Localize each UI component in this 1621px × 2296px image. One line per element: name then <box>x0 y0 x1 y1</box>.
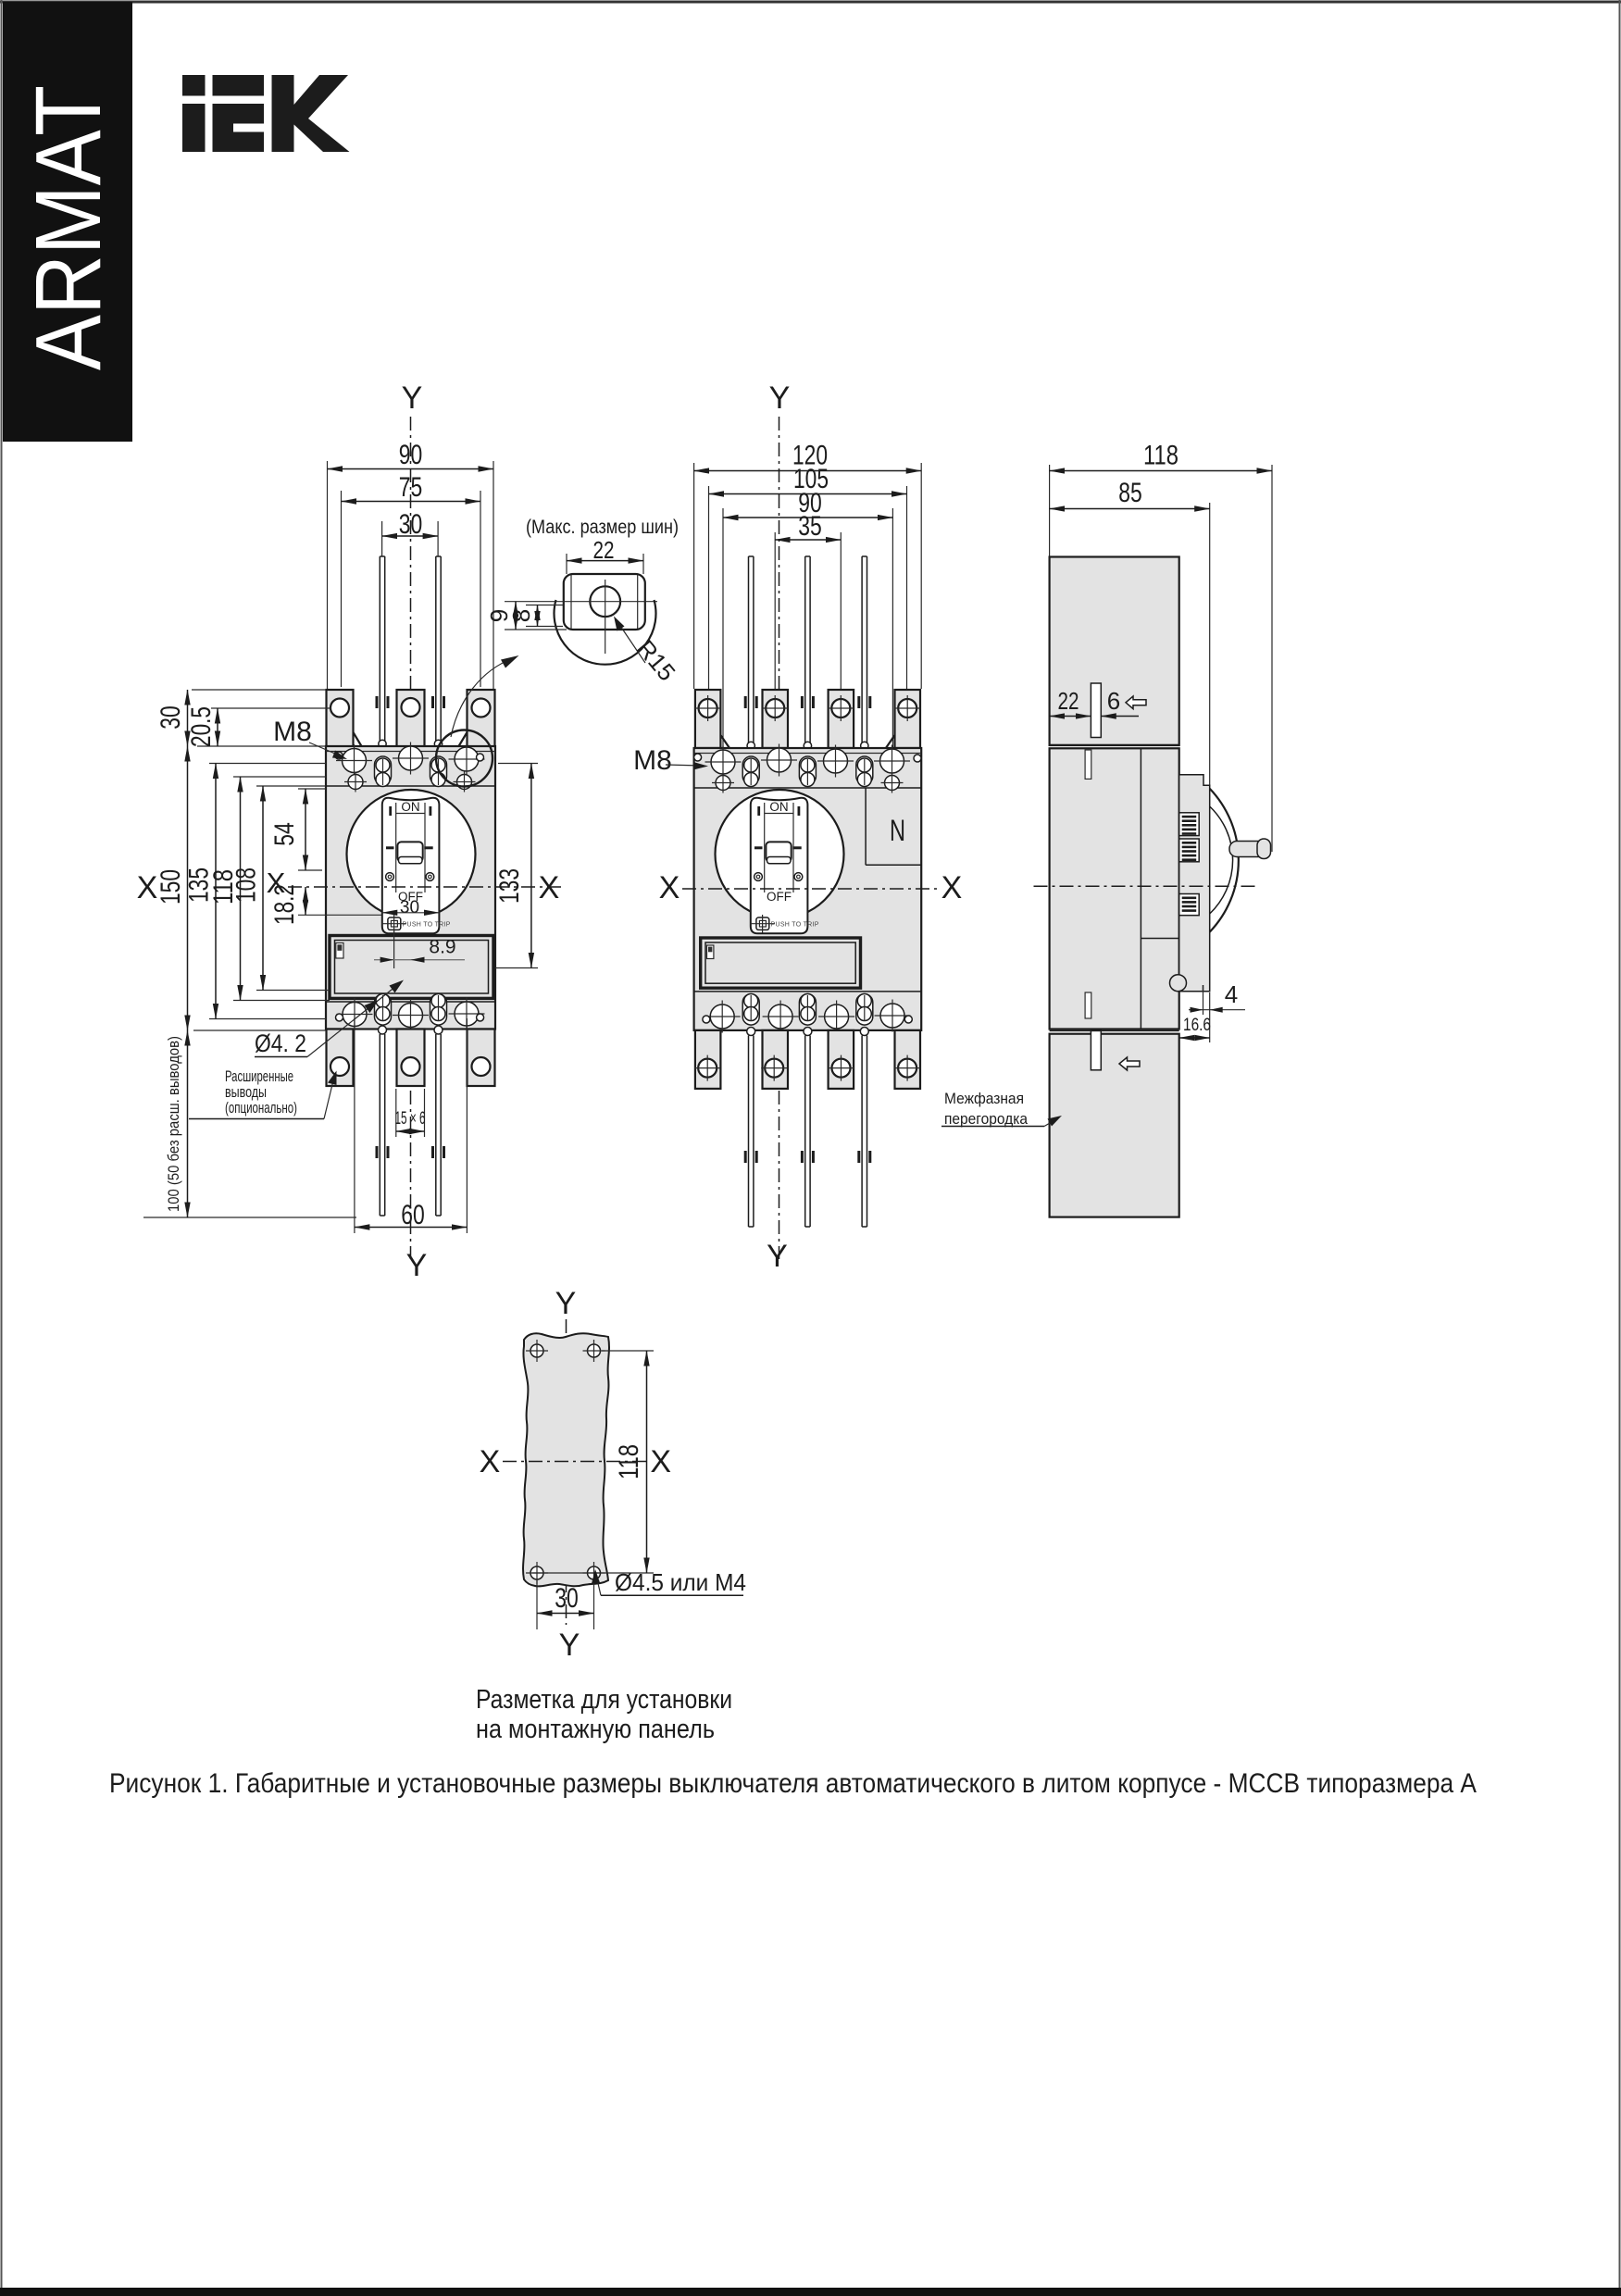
svg-text:X: X <box>480 1444 501 1479</box>
svg-text:ARMAT: ARMAT <box>17 85 120 370</box>
svg-text:22: 22 <box>593 536 615 564</box>
svg-text:30: 30 <box>156 705 186 730</box>
svg-text:4: 4 <box>1225 980 1238 1008</box>
svg-text:Межфазная: Межфазная <box>944 1090 1024 1107</box>
svg-text:108: 108 <box>231 867 262 903</box>
svg-text:X: X <box>650 1444 671 1479</box>
svg-text:X: X <box>539 870 560 905</box>
svg-text:60: 60 <box>401 1200 425 1230</box>
svg-text:54: 54 <box>269 822 300 846</box>
svg-text:30: 30 <box>399 509 423 540</box>
svg-text:(Макс. размер шин): (Макс. размер шин) <box>526 516 679 538</box>
svg-text:Y: Y <box>406 1248 428 1283</box>
svg-text:75: 75 <box>399 472 423 503</box>
svg-text:6: 6 <box>1107 687 1120 715</box>
svg-text:на монтажную панель: на монтажную панель <box>476 1715 715 1744</box>
svg-text:Рисунок 1. Габаритные и устано: Рисунок 1. Габаритные и установочные раз… <box>109 1768 1477 1799</box>
svg-text:X: X <box>659 870 680 905</box>
svg-text:90: 90 <box>399 440 423 470</box>
svg-text:85: 85 <box>1118 478 1142 508</box>
svg-text:PUSH TO TRIP: PUSH TO TRIP <box>403 922 451 929</box>
svg-text:15 × 6: 15 × 6 <box>395 1109 426 1129</box>
svg-text:18.2: 18.2 <box>269 884 300 925</box>
svg-text:Разметка для установки: Разметка для установки <box>476 1685 732 1715</box>
svg-text:118: 118 <box>1143 441 1178 471</box>
svg-text:Y: Y <box>402 381 423 416</box>
svg-text:Y: Y <box>767 1239 788 1274</box>
svg-text:8.9: 8.9 <box>429 937 455 958</box>
svg-text:100 (50 без расш. выводов): 100 (50 без расш. выводов) <box>165 1036 182 1212</box>
svg-text:N: N <box>890 814 905 847</box>
svg-text:Ø4. 2: Ø4. 2 <box>255 1029 306 1057</box>
svg-text:перегородка: перегородка <box>944 1110 1028 1128</box>
svg-text:М8: М8 <box>633 745 672 776</box>
svg-text:16.6: 16.6 <box>1183 1016 1211 1035</box>
svg-text:ON: ON <box>401 800 419 814</box>
svg-text:(опционально): (опционально) <box>225 1099 297 1117</box>
svg-text:8: 8 <box>507 609 535 622</box>
svg-text:150: 150 <box>156 869 186 905</box>
svg-text:Y: Y <box>559 1628 580 1663</box>
svg-text:X: X <box>137 870 158 905</box>
svg-text:Ø4.5 или М4: Ø4.5 или М4 <box>615 1568 746 1596</box>
svg-text:30: 30 <box>400 898 419 917</box>
svg-text:Y: Y <box>769 381 791 416</box>
svg-text:22: 22 <box>1058 687 1079 715</box>
svg-text:X: X <box>941 870 963 905</box>
svg-text:118: 118 <box>614 1444 644 1479</box>
svg-text:20.5: 20.5 <box>186 706 217 747</box>
svg-text:30: 30 <box>555 1583 579 1614</box>
svg-text:133: 133 <box>494 868 525 904</box>
svg-text:35: 35 <box>798 511 822 542</box>
svg-text:Y: Y <box>555 1286 577 1321</box>
svg-text:M8: M8 <box>273 717 312 747</box>
